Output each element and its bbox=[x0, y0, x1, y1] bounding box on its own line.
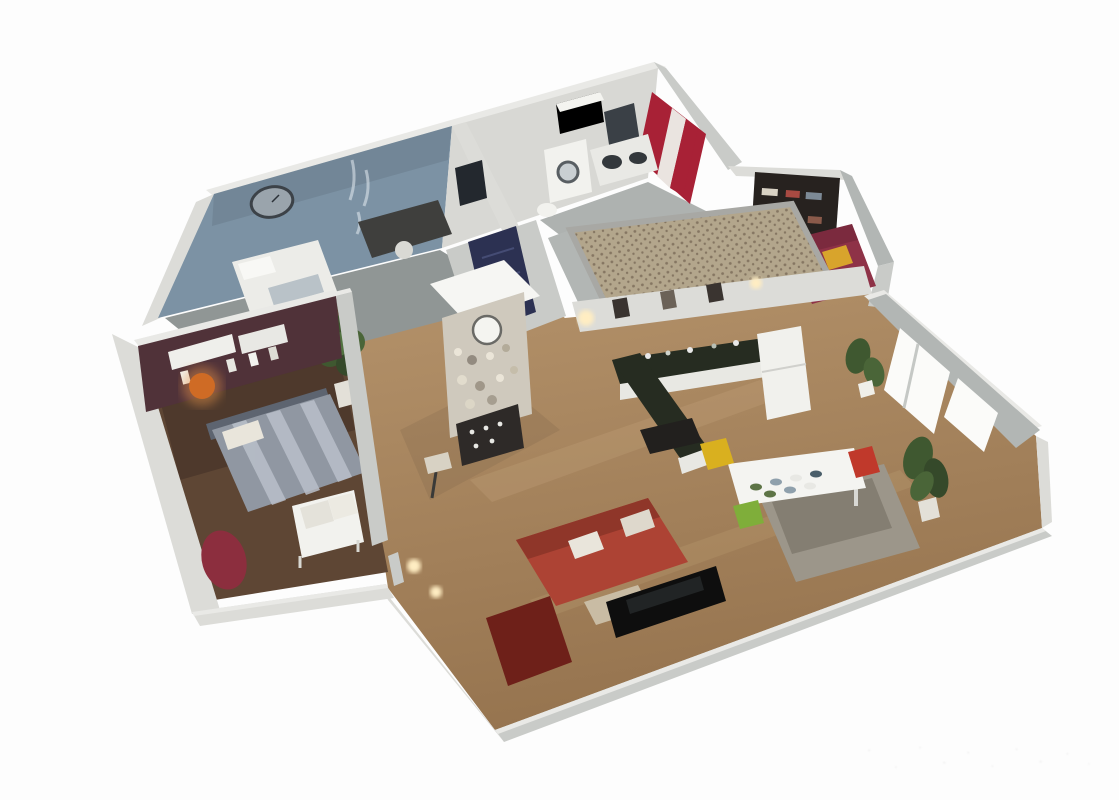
trinket bbox=[496, 374, 504, 382]
trinket bbox=[502, 344, 510, 352]
trinket bbox=[465, 399, 475, 409]
trinket bbox=[486, 352, 494, 360]
wall-sconce-glow bbox=[578, 310, 594, 326]
counter-item bbox=[645, 353, 651, 359]
trinket bbox=[510, 366, 518, 374]
plate bbox=[790, 475, 802, 482]
plate bbox=[784, 487, 796, 494]
orange-wall-lamp bbox=[189, 373, 215, 399]
trinket bbox=[457, 375, 467, 385]
basin-dark bbox=[629, 152, 647, 164]
trinket bbox=[475, 381, 485, 391]
book-row bbox=[806, 192, 822, 200]
knob bbox=[470, 430, 475, 435]
counter-item bbox=[666, 351, 671, 356]
plate bbox=[770, 479, 782, 486]
plate bbox=[750, 484, 762, 491]
knob bbox=[498, 422, 503, 427]
knob bbox=[490, 439, 495, 444]
desk-chair bbox=[395, 241, 413, 259]
knob bbox=[474, 444, 479, 449]
trinket bbox=[454, 348, 462, 356]
plate bbox=[810, 471, 822, 478]
wall-sconce-glow bbox=[430, 586, 442, 598]
wall-sconce-glow bbox=[407, 559, 421, 573]
picture-frame bbox=[455, 160, 487, 206]
counter-item bbox=[712, 344, 717, 349]
plate bbox=[764, 491, 776, 498]
knob bbox=[484, 426, 489, 431]
trinket bbox=[487, 395, 497, 405]
plate bbox=[804, 483, 816, 490]
book-row bbox=[786, 190, 800, 198]
book-row bbox=[808, 216, 822, 224]
counter-item bbox=[733, 340, 739, 346]
counter-item bbox=[687, 347, 693, 353]
wall-art bbox=[706, 282, 724, 302]
floorplan-render bbox=[0, 0, 1119, 800]
floorplan-svg bbox=[0, 0, 1119, 800]
trinket bbox=[467, 355, 477, 365]
cabinet-clock bbox=[473, 316, 501, 344]
toilet bbox=[537, 203, 557, 217]
basin-dark bbox=[602, 155, 622, 169]
washer-door bbox=[558, 162, 578, 182]
wall-sconce-glow bbox=[750, 277, 762, 289]
book-row bbox=[762, 188, 778, 196]
